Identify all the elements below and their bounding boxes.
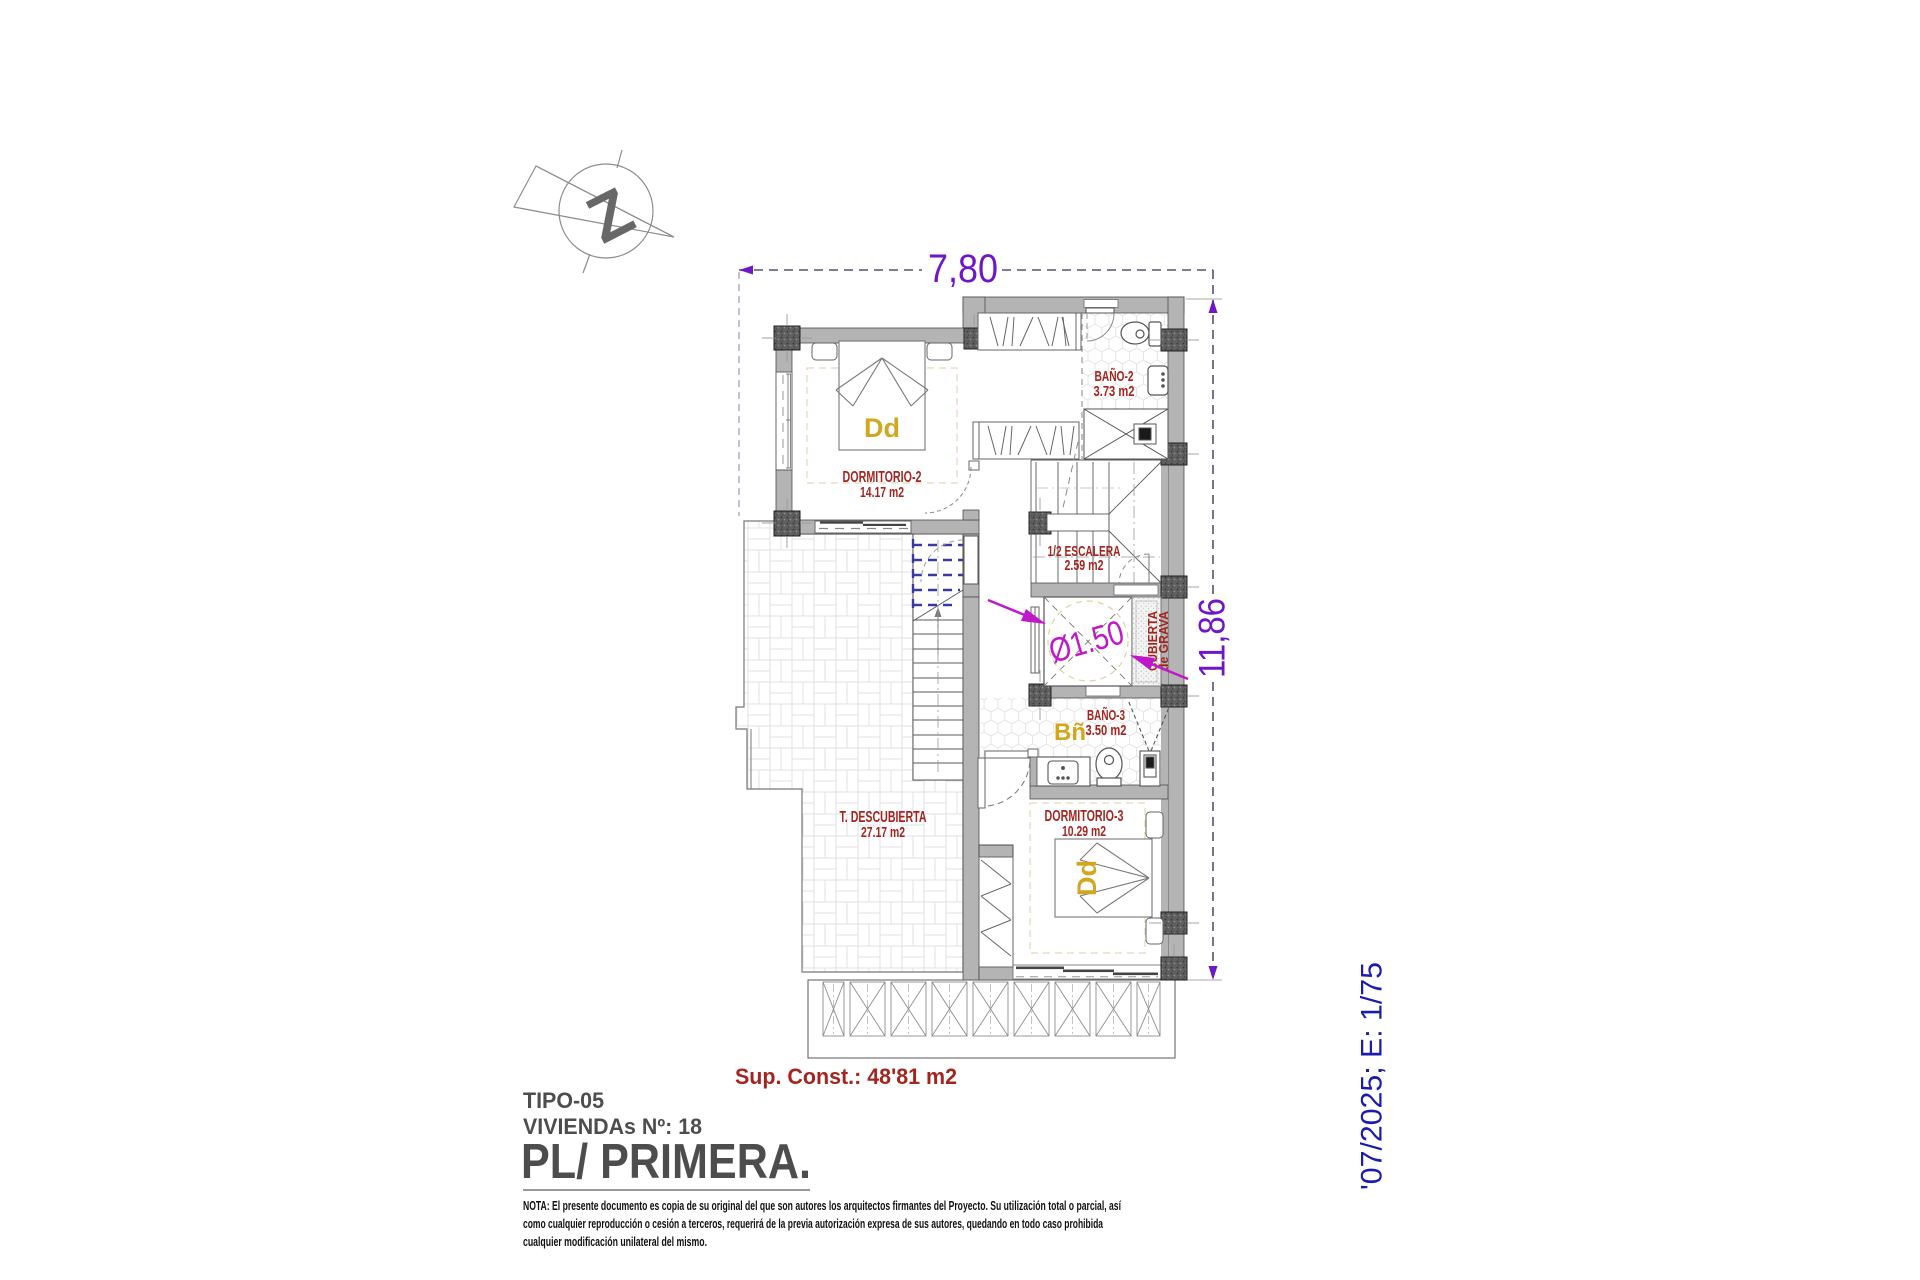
svg-text:como cualquier reproducción o: como cualquier reproducción o cesión a t… xyxy=(523,1216,1103,1231)
svg-text:3.50 m2: 3.50 m2 xyxy=(1086,722,1127,739)
svg-text:3.73 m2: 3.73 m2 xyxy=(1094,383,1135,400)
svg-text:NOTA: El presente documento es: NOTA: El presente documento es copia de … xyxy=(523,1198,1121,1213)
svg-text:cualquier modificación unilate: cualquier modificación unilateral del mi… xyxy=(523,1234,707,1249)
svg-text:10.29 m2: 10.29 m2 xyxy=(1062,823,1106,840)
svg-text:Bñ: Bñ xyxy=(1054,719,1086,746)
svg-text:7,80: 7,80 xyxy=(928,247,998,291)
svg-text:Sup. Const.: 48'81 m2: Sup. Const.: 48'81 m2 xyxy=(735,1064,957,1089)
svg-text:14.17 m2: 14.17 m2 xyxy=(860,484,904,501)
svg-text:Dd: Dd xyxy=(1072,860,1102,896)
svg-text:'07/2025; E: 1/75: '07/2025; E: 1/75 xyxy=(1356,962,1389,1190)
svg-text:Dd: Dd xyxy=(864,413,900,443)
svg-text:PL/ PRIMERA.: PL/ PRIMERA. xyxy=(521,1135,811,1189)
svg-text:TIPO-05: TIPO-05 xyxy=(523,1088,604,1113)
svg-text:de GRAVA: de GRAVA xyxy=(1157,611,1171,671)
svg-text:2.59 m2: 2.59 m2 xyxy=(1065,557,1104,574)
svg-text:11,86: 11,86 xyxy=(1192,598,1233,678)
svg-text:27.17 m2: 27.17 m2 xyxy=(861,824,905,841)
